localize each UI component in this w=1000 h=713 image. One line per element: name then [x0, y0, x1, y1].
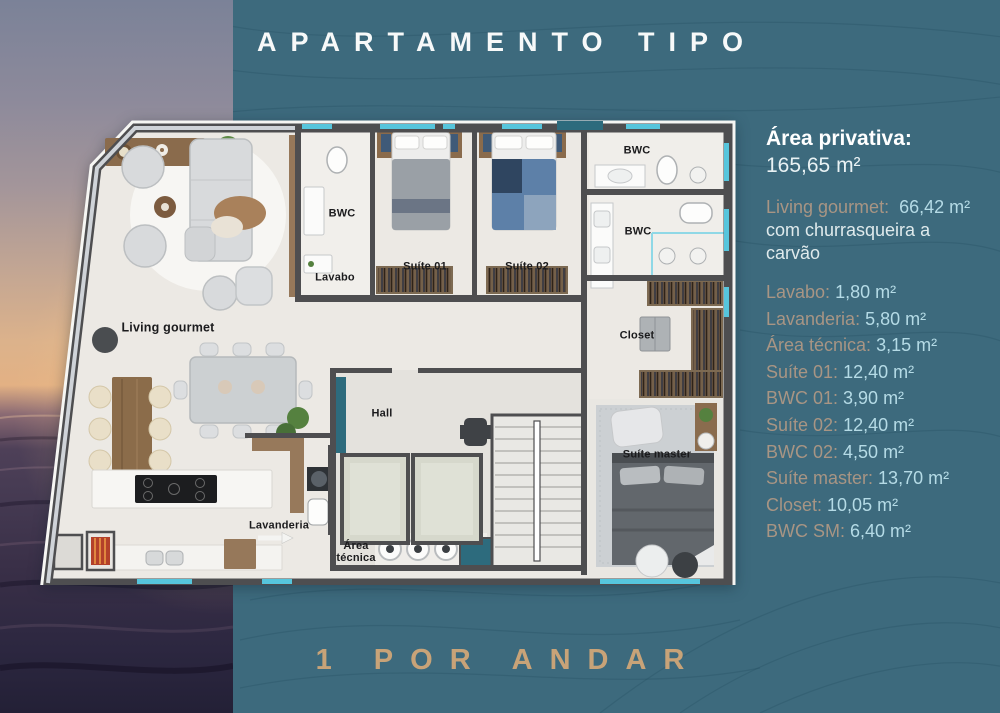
living-gourmet-row: Living gourmet: 66,42 m² com churrasquei… — [766, 196, 976, 265]
private-area-value: 165,65 m² — [766, 152, 991, 180]
units-per-floor-text: 1 POR ANDAR — [0, 644, 1000, 677]
area-row-suite-01: Suíte 01:12,40 m² — [766, 359, 991, 386]
row-value: 1,80 m² — [835, 282, 896, 302]
row-label: Suíte 01: — [766, 362, 838, 382]
room-label-area-tecnica: Área técnica — [330, 540, 382, 564]
living-gourmet-value: 66,42 m² — [899, 197, 970, 217]
room-label-living-gourmet: Living gourmet — [121, 323, 214, 334]
private-area-heading: Área privativa: — [766, 126, 991, 152]
master-wardrobe — [640, 371, 722, 397]
row-label: Closet: — [766, 495, 822, 515]
row-value: 12,40 m² — [843, 362, 914, 382]
area-row-bwc-02: BWC 02:4,50 m² — [766, 439, 991, 466]
row-label: Lavanderia: — [766, 309, 860, 329]
area-row-lavanderia: Lavanderia:5,80 m² — [766, 306, 991, 333]
area-row-suite-master: Suíte master:13,70 m² — [766, 465, 991, 492]
room-label-hall: Hall — [372, 409, 393, 420]
room-label-lavanderia: Lavanderia — [249, 521, 309, 532]
row-value: 3,90 m² — [843, 388, 904, 408]
area-row-lavabo: Lavabo:1,80 m² — [766, 279, 991, 306]
floor-plan: BWC Lavabo Suíte 01 Suíte 02 BWC BWC Clo… — [40, 115, 740, 585]
row-value: 4,50 m² — [843, 442, 904, 462]
row-label: BWC 01: — [766, 388, 838, 408]
row-value: 10,05 m² — [827, 495, 898, 515]
area-row-area-tecnica: Área técnica:3,15 m² — [766, 332, 991, 359]
row-label: BWC SM: — [766, 521, 845, 541]
room-label-bwc-01: BWC — [624, 146, 651, 157]
suite-master-furniture — [596, 403, 717, 578]
area-row-bwc-sm: BWC SM:6,40 m² — [766, 518, 991, 545]
row-value: 5,80 m² — [865, 309, 926, 329]
area-row-closet: Closet:10,05 m² — [766, 492, 991, 519]
row-value: 6,40 m² — [850, 521, 911, 541]
row-value: 3,15 m² — [876, 335, 937, 355]
area-row-bwc-01: BWC 01:3,90 m² — [766, 385, 991, 412]
room-label-bwc-lavabo: BWC — [329, 209, 356, 220]
row-label: Lavabo: — [766, 282, 830, 302]
area-summary-panel: Área privativa: 165,65 m² Living gourmet… — [766, 126, 991, 545]
row-label: Área técnica: — [766, 335, 871, 355]
row-value: 12,40 m² — [843, 415, 914, 435]
row-label: Suíte 02: — [766, 415, 838, 435]
room-label-suite-02: Suíte 02 — [505, 262, 549, 273]
row-label: BWC 02: — [766, 442, 838, 462]
room-label-lavabo: Lavabo — [315, 273, 355, 284]
room-label-suite-master: Suíte master — [623, 450, 691, 461]
area-row-suite-02: Suíte 02:12,40 m² — [766, 412, 991, 439]
marketing-page: BWC Lavabo Suíte 01 Suíte 02 BWC BWC Clo… — [0, 0, 1000, 713]
row-label: Suíte master: — [766, 468, 873, 488]
page-title: APARTAMENTO TIPO — [0, 27, 1000, 58]
room-label-bwc-02: BWC — [625, 227, 652, 238]
living-gourmet-label: Living gourmet: — [766, 197, 889, 217]
row-value: 13,70 m² — [878, 468, 949, 488]
room-label-closet: Closet — [620, 331, 655, 342]
room-label-suite-01: Suíte 01 — [403, 262, 447, 273]
living-gourmet-note: com churrasqueira a carvão — [766, 219, 976, 265]
